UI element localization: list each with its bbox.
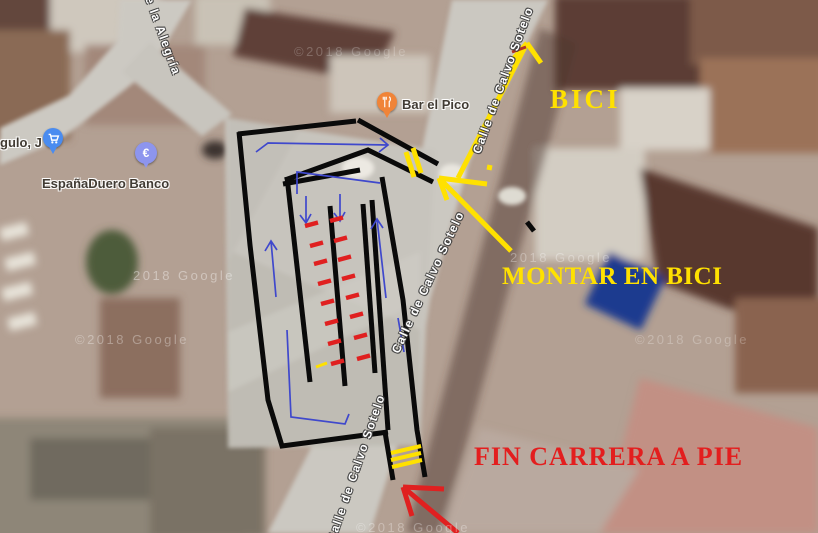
poi-label-bar-el-pico[interactable]: Bar el Pico [402,97,469,112]
bici-note: BICI [550,84,621,115]
cone-dash [318,281,331,285]
route-arrow [300,196,311,223]
cone-dash [338,257,351,261]
satellite-map-canvas[interactable]: gulo, J € EspañaDuero Banco Bar el Pico … [0,0,818,533]
cone-dash [346,295,359,299]
shopping-pin[interactable] [43,128,63,148]
google-watermark: ©2018 Google [356,520,470,533]
course-line [385,432,393,480]
finish-line-mark [391,446,421,453]
restaurant-pin[interactable] [377,92,397,112]
cone-dash [350,314,363,318]
cone-dash [314,261,327,265]
course-line [358,120,438,164]
poi-label-espanaduero-banco[interactable]: EspañaDuero Banco [42,176,169,191]
cone-dash [321,301,334,305]
google-watermark: ©2018 Google [635,332,749,347]
cone-dash [357,356,370,360]
cone-dash [342,276,355,280]
finish-line-mark [391,453,421,460]
course-line [527,222,534,231]
cone-dash [334,238,347,242]
cone-dash [354,335,367,339]
cart-icon [43,128,63,148]
bank-pin[interactable]: € [135,142,157,164]
euro-icon: € [135,142,157,164]
google-watermark: ©2018 Google [294,44,408,59]
bici-direction-arrow [458,43,541,178]
small-yellow-dash [316,363,327,367]
cone-dash [310,243,323,247]
course-line [238,121,356,134]
route-arrow [265,241,277,297]
small-yellow-dot [487,167,492,168]
finish-line-mark [392,460,422,467]
cone-dash [325,321,338,325]
google-watermark: 2018 Google [510,250,612,265]
poi-label-gulo-j[interactable]: gulo, J [0,135,42,150]
google-watermark: 2018 Google [133,268,235,283]
fin-carrera-a-pie-note: FIN CARRERA A PIE [474,442,743,472]
fork-knife-icon [377,92,397,112]
montar-en-bici-note: MONTAR EN BICI [502,263,722,291]
google-watermark: ©2018 Google [75,332,189,347]
